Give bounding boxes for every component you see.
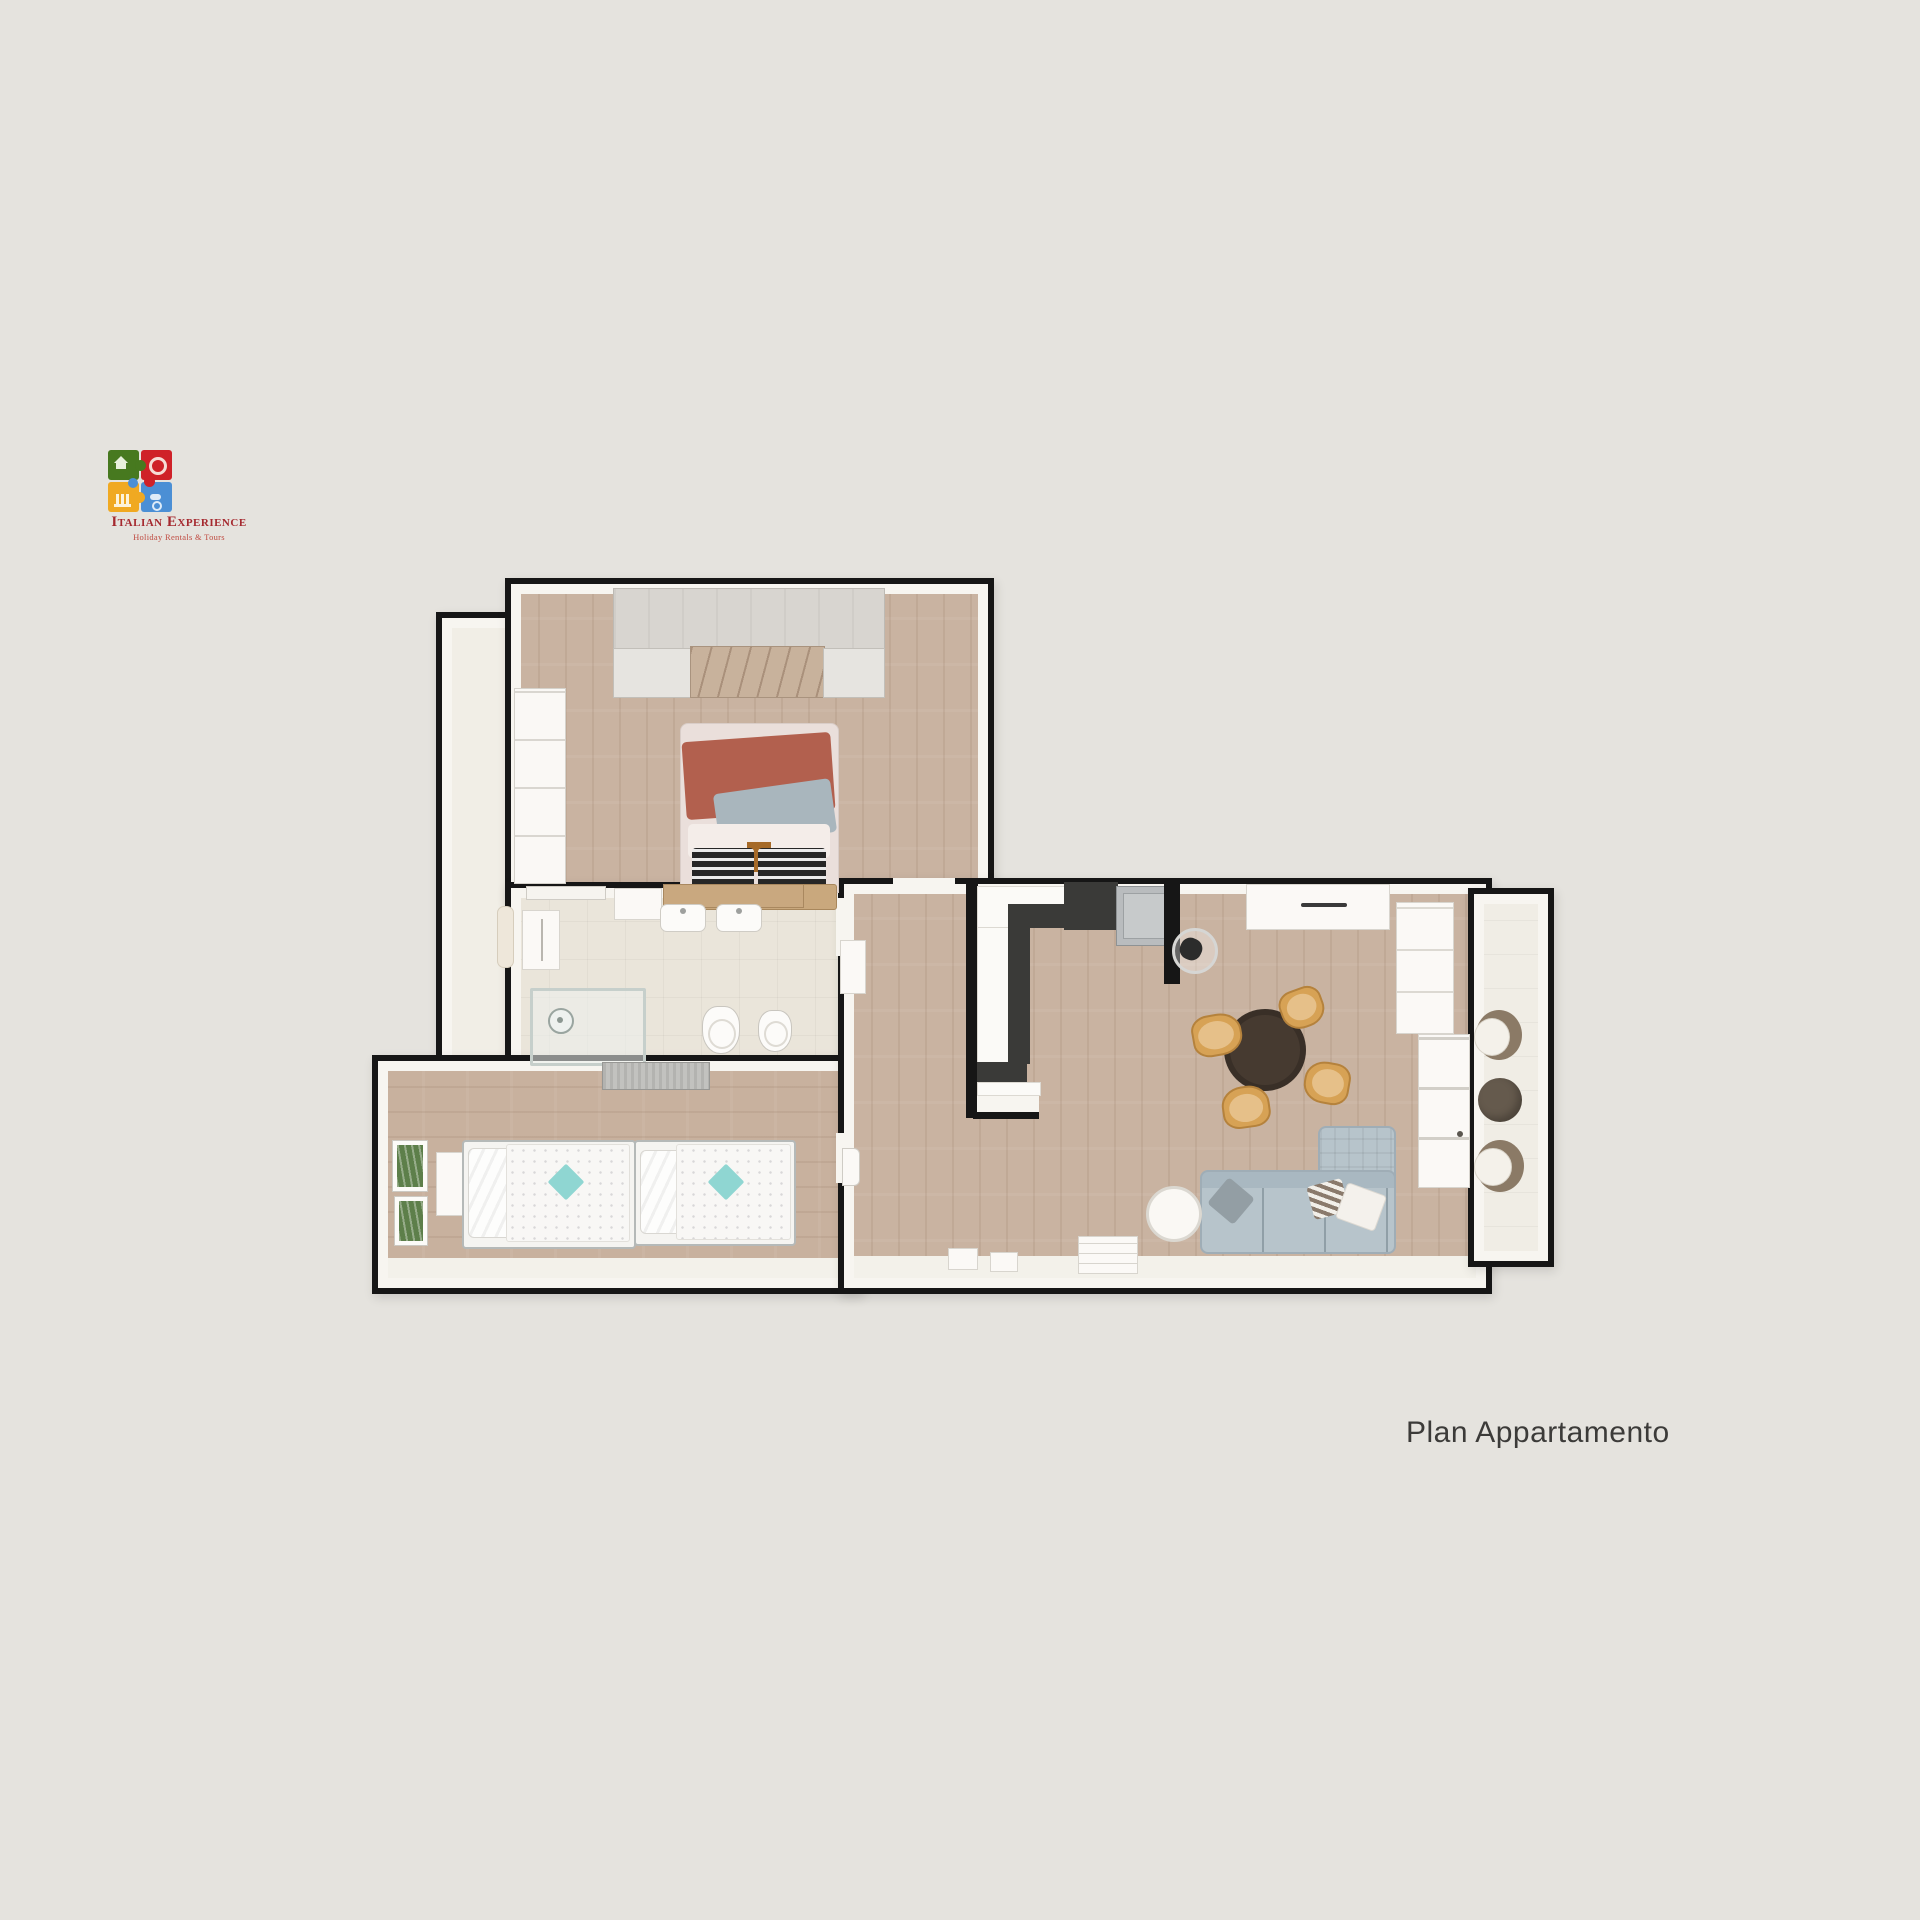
towel-rail <box>526 886 606 900</box>
puzzle-tab-icon <box>134 492 145 503</box>
cabinet-handle <box>541 919 543 961</box>
colosseum-icon <box>121 494 124 504</box>
sideboard-handle <box>1301 903 1347 907</box>
bedroom-shelf-unit <box>514 688 566 884</box>
wall-art <box>394 1196 428 1246</box>
puzzle-tab-icon <box>135 460 146 471</box>
page-canvas: Italian Experience Holiday Rentals & Tou… <box>0 0 1920 1920</box>
corner-cabinet <box>1396 902 1454 1034</box>
wall-art-print <box>399 1201 423 1241</box>
logo-title: Italian Experience <box>84 514 274 531</box>
sideboard <box>1246 884 1390 930</box>
scooter-icon <box>150 494 161 500</box>
balcony-table <box>1478 1078 1522 1122</box>
floor-box <box>990 1252 1018 1272</box>
bathroom-cabinet <box>614 888 662 920</box>
bookshelf <box>1418 1034 1470 1188</box>
bidet-seat <box>764 1021 788 1047</box>
balcony-chair-cushion <box>1474 1018 1510 1056</box>
agency-logo: Italian Experience Holiday Rentals & Tou… <box>84 448 274 548</box>
coffee-table <box>1146 1186 1202 1242</box>
faucet-icon <box>680 908 686 914</box>
shower-head-icon <box>548 1008 574 1034</box>
logo-subtitle: Holiday Rentals & Tours <box>84 532 274 542</box>
room-balcony <box>1468 888 1554 1267</box>
wardrobe-drawer-unit <box>823 648 885 698</box>
chair-seat <box>1283 990 1320 1025</box>
floor-box <box>948 1248 978 1270</box>
kitchen-counter-end <box>977 1082 1041 1096</box>
wardrobe-wood-panel <box>690 646 825 698</box>
wardrobe-drawer-unit <box>613 648 692 698</box>
sink <box>716 904 762 932</box>
wardrobe <box>613 588 885 652</box>
bedroom-door-opening <box>893 878 955 892</box>
house-icon <box>116 462 126 469</box>
sink <box>660 904 706 932</box>
bathroom-wall-cabinet <box>522 910 560 970</box>
colosseum-icon <box>114 504 131 507</box>
puzzle-tab-icon <box>144 476 155 487</box>
chair-seat <box>1227 1092 1265 1124</box>
refrigerator-top <box>1123 893 1167 939</box>
bathroom-door-leaf <box>497 906 514 968</box>
puzzle-tab-icon <box>128 478 138 488</box>
kitchen-countertop <box>1008 920 1030 1064</box>
bidet <box>758 1010 792 1052</box>
toilet <box>702 1006 740 1054</box>
bookshelf-knob <box>1457 1131 1463 1137</box>
kitchen-partition-wall <box>1164 882 1180 984</box>
kitchen-tall-unit <box>1064 882 1118 930</box>
drawer-unit <box>1078 1236 1138 1274</box>
shower-enclosure <box>530 988 646 1066</box>
colosseum-icon <box>116 494 119 504</box>
chair-seat <box>1196 1018 1236 1052</box>
faucet-icon <box>736 908 742 914</box>
kids-door-leaf <box>842 1148 860 1186</box>
colosseum-icon <box>126 494 129 504</box>
chair-seat <box>1310 1067 1346 1100</box>
striped-pillow <box>692 848 754 888</box>
wall-art <box>392 1140 428 1192</box>
plan-caption: Plan Appartamento <box>1406 1416 1746 1450</box>
striped-pillow <box>758 848 826 888</box>
hall-wall-endcap-edge <box>973 1112 1039 1119</box>
balcony-chair-cushion <box>1474 1148 1512 1186</box>
radiator <box>602 1062 710 1090</box>
scooter-icon <box>152 501 162 511</box>
puzzle-logo-icon <box>108 450 174 514</box>
plate-icon <box>149 457 167 475</box>
toilet-seat <box>708 1019 736 1049</box>
hall-shelf <box>840 940 866 994</box>
shower-head-icon <box>557 1017 563 1023</box>
wall-art-print <box>397 1145 423 1187</box>
kitchen-countertop <box>977 1062 1027 1082</box>
